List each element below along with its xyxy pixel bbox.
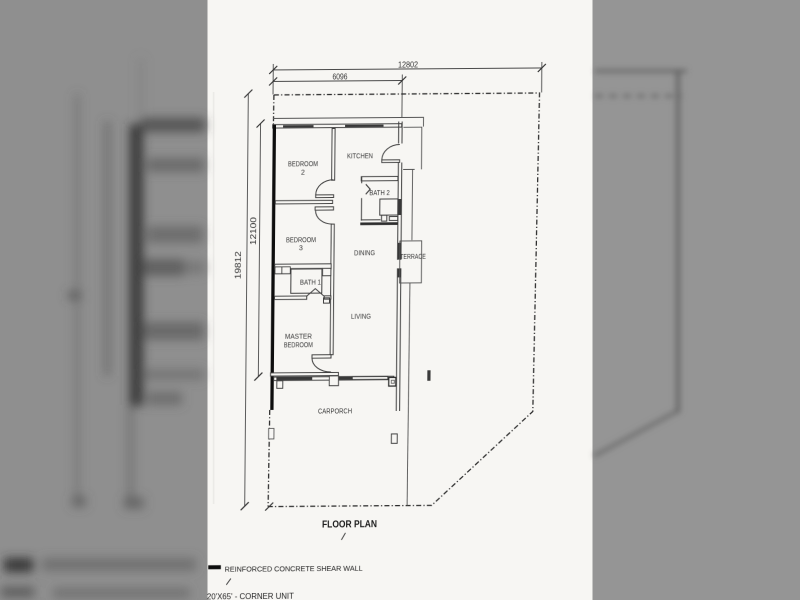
svg-text:TERRACE: TERRACE [400,254,426,261]
svg-text:2: 2 [301,170,305,177]
svg-text:MASTER: MASTER [285,334,312,341]
svg-text:12100: 12100 [249,216,258,245]
svg-text:19812: 19812 [234,251,243,279]
svg-text:BEDROOM: BEDROOM [286,237,316,244]
svg-text:3: 3 [299,245,303,252]
svg-text:BEDROOM: BEDROOM [288,161,318,168]
svg-text:BEDROOM: BEDROOM [284,342,313,349]
svg-text:12802: 12802 [398,60,418,69]
svg-text:BATH 2: BATH 2 [369,190,390,197]
svg-text:20'X65' - CORNER UNIT: 20'X65' - CORNER UNIT [207,591,295,600]
svg-text:KITCHEN: KITCHEN [347,153,373,160]
svg-text:DINING: DINING [354,250,375,257]
svg-text:CARPORCH: CARPORCH [318,408,352,415]
svg-text:LIVING: LIVING [351,314,371,321]
svg-text:FLOOR PLAN: FLOOR PLAN [322,518,377,530]
svg-text:6096: 6096 [332,72,347,81]
svg-text:REINFORCED CONCRETE SHEAR WALL: REINFORCED CONCRETE SHEAR WALL [225,564,363,574]
svg-text:BATH 1: BATH 1 [300,280,321,287]
